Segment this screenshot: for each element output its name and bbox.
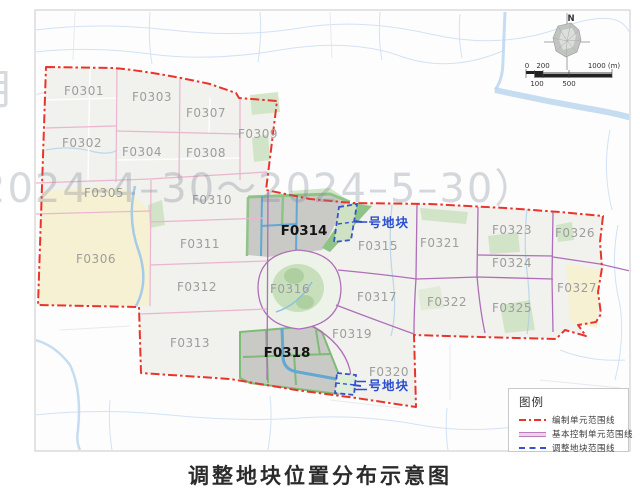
legend-title: 图例 bbox=[519, 394, 628, 410]
parcel-label-F0313: F0313 bbox=[170, 336, 210, 350]
scalebar-bottom-1: 500 bbox=[562, 80, 575, 88]
parcel-label-F0304: F0304 bbox=[122, 145, 162, 159]
parcel-label-F0321: F0321 bbox=[420, 236, 460, 250]
parcel-label-plot-2: 二号地块 bbox=[355, 378, 409, 393]
parcel-label-F0310: F0310 bbox=[192, 193, 232, 207]
parcel-label-F0309: F0309 bbox=[238, 127, 278, 141]
north-label: N bbox=[567, 14, 574, 24]
parcel-label-F0327: F0327 bbox=[557, 281, 597, 295]
parcel-label-F0306: F0306 bbox=[76, 252, 116, 266]
parcel-label-F0324: F0324 bbox=[492, 256, 532, 270]
legend-item-0: 编制单元范围线 bbox=[519, 416, 628, 424]
map-title: 调整地块位置分布示意图 bbox=[0, 460, 640, 490]
parcel-label-F0314: F0314 bbox=[281, 223, 328, 239]
legend-item-label: 基本控制单元范围线 bbox=[552, 428, 633, 440]
parcel-label-F0305: F0305 bbox=[84, 186, 124, 200]
parcel-label-F0315: F0315 bbox=[358, 239, 398, 253]
parcel-label-F0307: F0307 bbox=[186, 106, 226, 120]
blue-dash-swatch-icon bbox=[519, 447, 546, 449]
legend-item-label: 调整地块范围线 bbox=[552, 442, 615, 454]
parcel-label-F0303: F0303 bbox=[132, 90, 172, 104]
parcel-label-F0308: F0308 bbox=[186, 146, 226, 160]
scalebar-bottom-0: 100 bbox=[530, 80, 543, 88]
planning-map-page: F0301F0303F0307F0309F0302F0304F0308F0305… bbox=[0, 0, 640, 501]
pink-solid-swatch-icon bbox=[519, 432, 546, 437]
parcel-label-F0323: F0323 bbox=[492, 223, 532, 237]
scalebar-top-2: 1000 (m) bbox=[588, 62, 621, 70]
parcel-label-F0317: F0317 bbox=[357, 290, 397, 304]
legend-items: 编制单元范围线基本控制单元范围线调整地块范围线 bbox=[519, 416, 628, 452]
legend-item-label: 编制单元范围线 bbox=[552, 414, 615, 426]
parcel-label-F0312: F0312 bbox=[177, 280, 217, 294]
parcel-label-F0320: F0320 bbox=[369, 365, 409, 379]
legend-item-2: 调整地块范围线 bbox=[519, 444, 628, 452]
scalebar-top-0: 0 bbox=[525, 62, 529, 70]
parcel-label-F0322: F0322 bbox=[427, 295, 467, 309]
parcel-label-plot-1: 一号地块 bbox=[355, 215, 409, 230]
parcel-label-F0302: F0302 bbox=[62, 136, 102, 150]
parcel-label-F0326: F0326 bbox=[555, 226, 595, 240]
scalebar-top-1: 200 bbox=[536, 62, 549, 70]
parcel-label-F0316: F0316 bbox=[270, 282, 310, 296]
red-dashdot-swatch-icon bbox=[519, 419, 546, 421]
legend-box: 图例 编制单元范围线基本控制单元范围线调整地块范围线 bbox=[508, 388, 629, 452]
parcel-label-F0319: F0319 bbox=[332, 327, 372, 341]
parcel-label-F0301: F0301 bbox=[64, 84, 104, 98]
parcel-label-F0318: F0318 bbox=[264, 345, 311, 361]
parcel-label-F0325: F0325 bbox=[492, 301, 532, 315]
legend-item-1: 基本控制单元范围线 bbox=[519, 430, 628, 438]
parcel-label-F0311: F0311 bbox=[180, 237, 220, 251]
